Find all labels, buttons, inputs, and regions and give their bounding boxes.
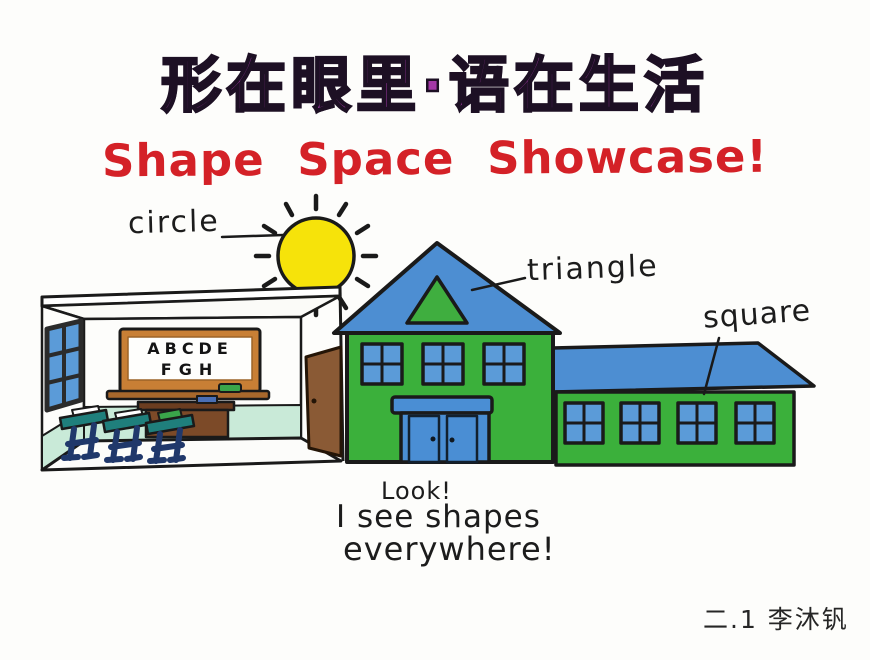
square-window — [736, 403, 774, 443]
blackboard-letters-line2: FGH — [128, 362, 252, 378]
triangle-label: triangle — [527, 252, 660, 287]
poster-title-english: Shape Space Showcase! — [0, 133, 870, 184]
square-label: square — [702, 296, 812, 333]
student-signature: 二.1 李沐钒 — [703, 607, 849, 632]
square-window — [565, 403, 603, 443]
caption-line3: everywhere! — [343, 533, 556, 565]
long-building-illustration — [552, 343, 814, 465]
board-ledge — [107, 391, 269, 399]
circle-callout-line — [222, 235, 283, 237]
poster-title-chinese: 形在眼里·语在生活 — [0, 56, 870, 116]
circle-label: circle — [128, 207, 221, 239]
door-handle-icon — [431, 437, 436, 442]
long-building-roof — [552, 343, 814, 392]
caption-line2: I see shapes — [336, 502, 541, 533]
chalk-box-icon — [197, 396, 217, 403]
sun-circle-icon — [278, 218, 354, 294]
poster-canvas: 形在眼里·语在生活 Shape Space Showcase! circle t… — [0, 0, 870, 660]
house-illustration — [334, 243, 560, 462]
house-front-door — [392, 397, 492, 462]
classroom-side-door — [306, 347, 341, 456]
eraser-icon — [219, 384, 241, 392]
blackboard-letters-line1: ABCDE — [128, 341, 252, 357]
classroom-window — [47, 321, 81, 410]
house-window — [484, 344, 524, 384]
house-window — [362, 344, 402, 384]
square-window — [678, 403, 716, 443]
door-lintel — [392, 397, 492, 413]
square-window — [621, 403, 659, 443]
house-window — [423, 344, 463, 384]
door-knob-icon — [312, 399, 317, 404]
door-handle-icon — [450, 438, 455, 443]
